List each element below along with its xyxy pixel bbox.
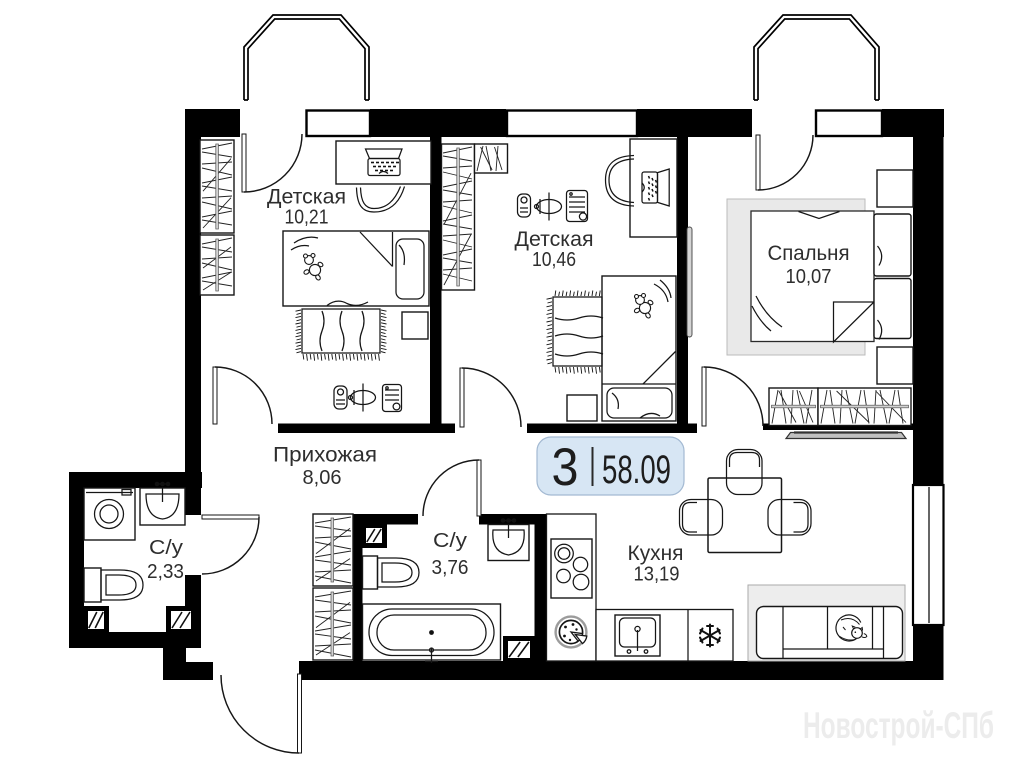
svg-text:Спальня: Спальня [768, 242, 850, 265]
svg-text:2,33: 2,33 [147, 561, 184, 583]
svg-text:8,06: 8,06 [303, 467, 342, 489]
svg-text:10,46: 10,46 [532, 249, 576, 271]
svg-text:Детская: Детская [267, 186, 346, 209]
svg-text:С/у: С/у [149, 537, 183, 559]
svg-text:С/у: С/у [433, 530, 467, 552]
svg-text:10,21: 10,21 [285, 207, 329, 229]
svg-text:13,19: 13,19 [634, 564, 680, 586]
svg-text:58.09: 58.09 [602, 448, 671, 492]
svg-text:Кухня: Кухня [628, 542, 684, 565]
svg-text:3: 3 [552, 438, 579, 497]
svg-text:Новострой-СПб: Новострой-СПб [803, 705, 994, 746]
svg-text:Детская: Детская [515, 228, 594, 251]
svg-text:Прихожая: Прихожая [273, 444, 377, 467]
svg-text:3,76: 3,76 [432, 557, 469, 579]
svg-text:10,07: 10,07 [786, 266, 832, 288]
